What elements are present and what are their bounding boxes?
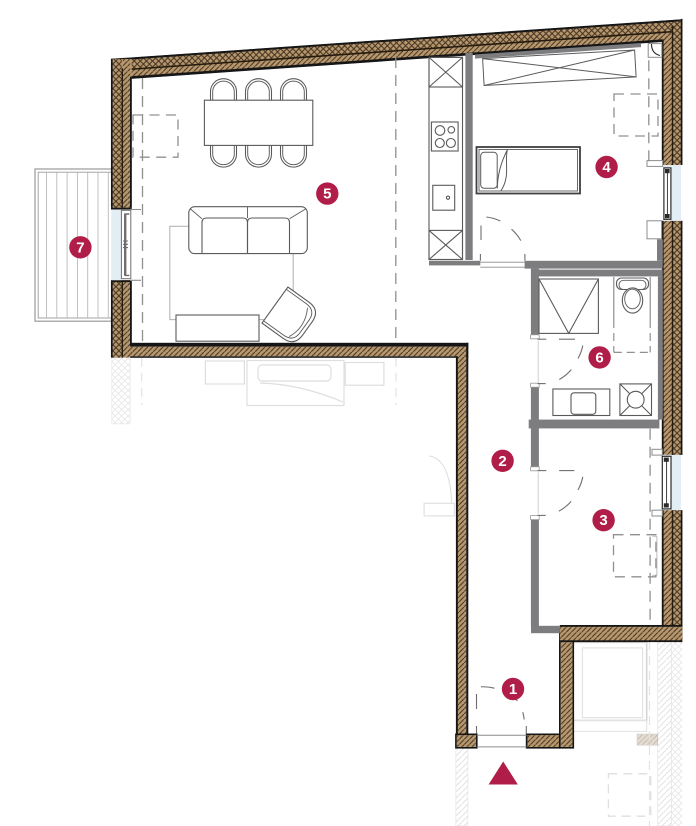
svg-text:6: 6: [595, 349, 603, 366]
svg-text:2: 2: [498, 453, 506, 470]
svg-text:5: 5: [323, 186, 331, 203]
svg-text:3: 3: [599, 512, 607, 529]
svg-text:1: 1: [509, 681, 517, 698]
svg-text:7: 7: [76, 239, 84, 256]
svg-text:4: 4: [602, 159, 611, 176]
